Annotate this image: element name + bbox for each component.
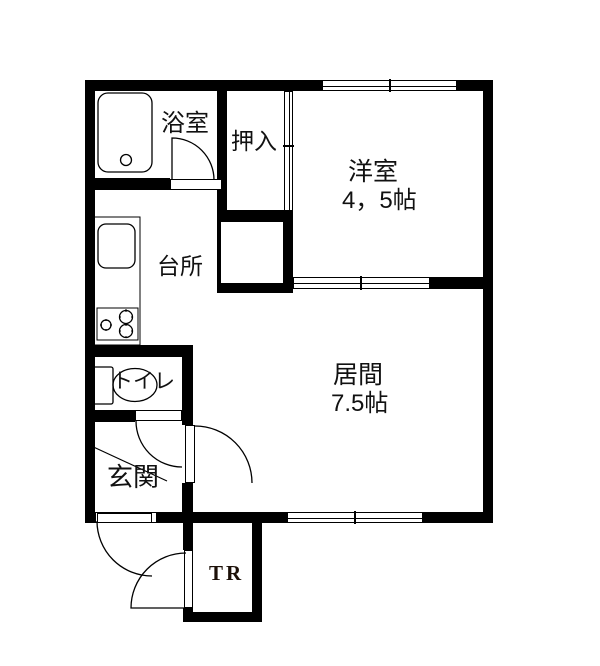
living-door-arc bbox=[195, 426, 252, 483]
toilet-door-arc bbox=[136, 421, 182, 467]
fixtures-layer bbox=[0, 0, 600, 666]
stove-icon bbox=[97, 308, 138, 340]
label-western-room: 洋室 bbox=[348, 159, 398, 185]
label-entrance: 玄関 bbox=[107, 464, 159, 491]
label-toilet: トイレ bbox=[112, 371, 175, 393]
trunk-door-arc bbox=[131, 553, 186, 608]
label-living-room-size: 7.5帖 bbox=[331, 391, 388, 416]
floor-plan: 浴室 押入 洋室 4，5帖 台所 トイレ 居間 7.5帖 玄関 TR bbox=[0, 0, 600, 666]
front-door-arc bbox=[97, 521, 152, 576]
label-kitchen: 台所 bbox=[157, 254, 203, 278]
bathroom-door-arc bbox=[172, 138, 214, 180]
sink-icon bbox=[93, 217, 140, 345]
label-bathroom: 浴室 bbox=[161, 111, 209, 136]
label-closet: 押入 bbox=[231, 129, 277, 153]
label-western-room-size: 4，5帖 bbox=[342, 188, 417, 213]
label-trunk-room: TR bbox=[209, 562, 244, 584]
label-living-room: 居間 bbox=[333, 362, 383, 388]
bathtub-icon bbox=[98, 93, 152, 172]
